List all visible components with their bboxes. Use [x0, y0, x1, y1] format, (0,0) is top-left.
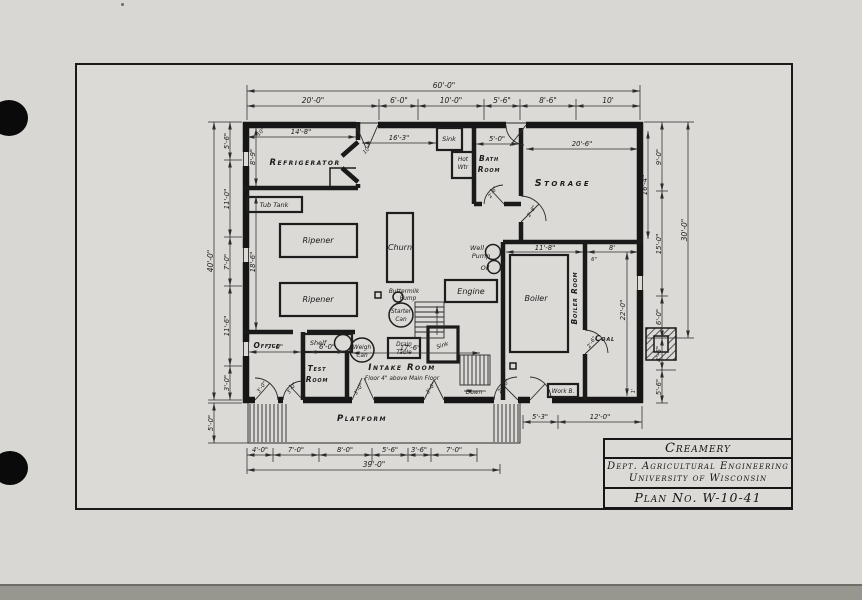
dim-bottom-4: 5'-6": [382, 446, 398, 454]
label-down: Down: [466, 390, 483, 396]
label-oil: Oil: [481, 264, 490, 272]
dim-bath-width: 5'-0": [489, 135, 505, 143]
dim-right-2: 15'-0": [655, 234, 663, 254]
boiler-box: [510, 255, 568, 352]
label-sink-top: Sink: [442, 135, 456, 143]
dim-left-1: 5'-6": [223, 133, 231, 149]
scanned-blueprint-page: Refrigerator Storage Bath Room Office Te…: [0, 0, 862, 600]
dim-six-inch: 6": [591, 257, 597, 263]
label-work-bench: Work B.: [552, 389, 575, 395]
dim-left-3: 7'-0": [223, 254, 231, 270]
label-boiler: Boiler: [524, 294, 548, 303]
title-block: Creamery Dept. Agricultural Engineering …: [603, 438, 793, 509]
dim-bottom-6: 7'-0": [446, 446, 462, 454]
dim-top-1: 20'-0": [302, 96, 325, 105]
dim-refrigerator-width: 14'-8": [291, 128, 311, 136]
door-label-storage: 2'-8": [526, 205, 538, 219]
label-engine: Engine: [457, 287, 484, 296]
dim-bottom-1: 4'-0": [252, 446, 268, 454]
room-label-refrigerator: Refrigerator: [269, 158, 340, 168]
dim-right-4: 4'-6": [655, 346, 663, 362]
label-well-pump: Pump: [472, 252, 491, 260]
dim-right-1: 9'-0": [655, 149, 663, 165]
room-label-test-1: Test: [308, 364, 327, 373]
dim-left-2: 11'-0": [223, 189, 231, 209]
dim-storage-width: 20'-6": [572, 140, 592, 148]
label-hot: Hot: [458, 157, 469, 163]
starter-can-circle: [389, 303, 413, 327]
label-churn: Churn: [388, 243, 412, 252]
equipment-labels: Tub Tank Ripener Ripener Churn Sink Hot …: [260, 135, 575, 396]
room-label-test-2: Room: [306, 375, 328, 384]
title-block-univ: University of Wisconsin: [629, 473, 767, 485]
boiler-drain-square: [510, 363, 516, 369]
shelf-circle: [335, 335, 352, 352]
label-starter: Starter: [391, 309, 412, 315]
dim-bottom-right-1: 5'-3": [532, 413, 548, 421]
title-block-dept: Dept. Agricultural Engineering: [607, 461, 789, 473]
equipment-shapes: [247, 128, 676, 443]
dim-bottom-total: 39'-0": [363, 460, 386, 469]
room-label-platform: Platform: [337, 414, 387, 424]
dim-bottom-right-2: 12'-0": [590, 413, 610, 421]
dim-intake-width: 17'-6": [400, 344, 420, 352]
label-weigh-can: Can: [356, 353, 368, 359]
dim-top-3: 10'-0": [440, 96, 463, 105]
dim-top-5: 8'-6": [539, 96, 557, 105]
dim-left-mid: 18'-6": [249, 252, 257, 272]
label-weigh: Weigh: [353, 345, 372, 351]
stairs-down: [460, 355, 490, 391]
dim-mid-width: 16'-3": [389, 134, 409, 142]
scanner-edge-strip: [0, 584, 862, 600]
dim-coal-height: 22'-0": [619, 300, 627, 320]
dim-wall-thickness-2: 10": [362, 145, 373, 156]
dim-top-6: 10': [602, 96, 614, 105]
dim-wall-thickness-1: 10": [256, 127, 267, 138]
dim-refrigerator-height: 8'-9": [249, 149, 257, 165]
label-well: Well: [470, 244, 484, 252]
title-block-org: Dept. Agricultural Engineering Universit…: [605, 459, 791, 489]
dim-storage-height: 16'-4": [641, 175, 649, 195]
dim-right-3: 6'-0": [655, 309, 663, 325]
dim-coal-width: 8': [609, 244, 615, 252]
label-tub-tank: Tub Tank: [260, 201, 289, 209]
dim-one-foot: 1': [631, 389, 637, 394]
room-label-intake: Intake Room: [368, 363, 435, 373]
room-label-bath-2: Room: [478, 165, 500, 174]
label-buttermilk: Buttermilk: [389, 289, 420, 295]
dim-bottom-3: 8'-0": [337, 446, 353, 454]
room-label-storage: Storage: [535, 178, 591, 189]
label-sink-bottom: Sink: [436, 341, 450, 351]
label-ripener-1: Ripener: [302, 236, 334, 245]
dim-left-total: 40'-0": [206, 250, 215, 273]
note-intake-floor: Floor 4" above Main Floor: [365, 376, 440, 382]
dim-left-4: 11'-6": [223, 316, 231, 336]
dim-right-total: 30'-0": [680, 219, 689, 242]
dim-top-total: 60'-0": [433, 81, 456, 90]
title-block-project: Creamery: [605, 440, 791, 459]
oil-circle: [488, 261, 501, 274]
dim-bottom-2: 7'-0": [288, 446, 304, 454]
label-ripener-2: Ripener: [302, 295, 334, 304]
dim-test-width: 6'-0": [319, 343, 335, 351]
dim-office-width: 7'-0": [267, 343, 283, 351]
dim-platform-depth: 5'-0": [207, 415, 215, 431]
dim-bottom-5: 3'-6": [411, 446, 427, 454]
dim-left-5: 3'-0": [223, 375, 231, 391]
dim-right-5: 5'-6": [655, 379, 663, 395]
room-label-boiler-room: Boiler Room: [570, 272, 579, 325]
room-label-bath-1: Bath: [479, 154, 499, 163]
label-buttermilk-pump: Pump: [400, 296, 417, 302]
title-block-plan-no: Plan No. W-10-41: [605, 489, 791, 505]
dim-boiler-width: 11'-8": [535, 244, 555, 252]
label-wtr: Wtr: [458, 165, 469, 171]
dim-top-2: 6'-0": [390, 96, 408, 105]
label-starter-can: Can: [395, 317, 407, 323]
door-label-intake-1: 3'-0": [353, 383, 365, 397]
room-label-coal: Coal: [595, 334, 615, 343]
floor-drain-square: [375, 292, 381, 298]
dim-top-4: 5'-6": [493, 96, 511, 105]
